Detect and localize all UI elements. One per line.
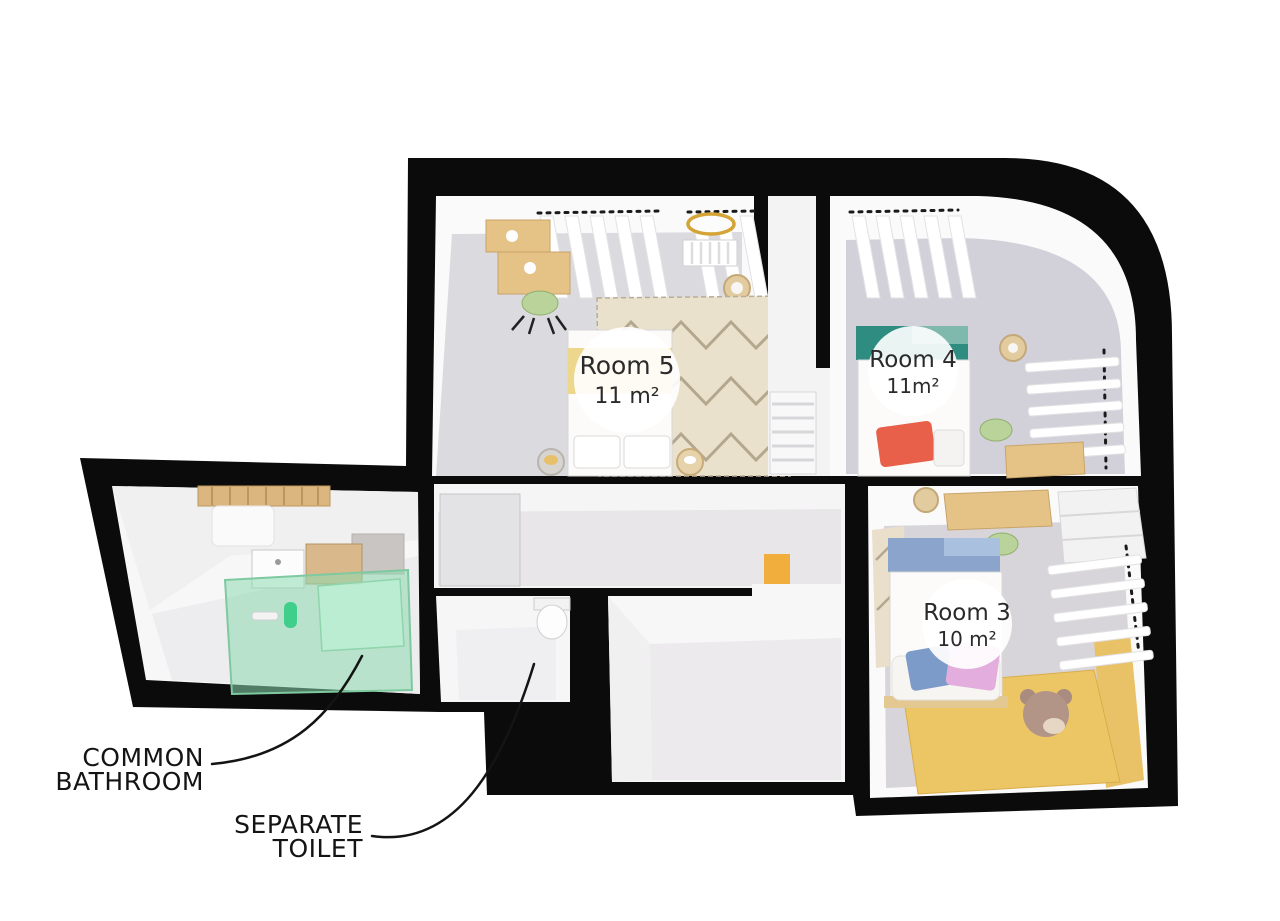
floorplan-svg: Room 5 11 m² Room 4 11m² Room 3 10 m² CO…: [0, 0, 1280, 921]
room-3: [868, 486, 1154, 798]
bed-pillow: [934, 430, 964, 466]
teddy-snout: [1043, 718, 1065, 734]
room-3-badge: Room 3 10 m²: [922, 579, 1012, 669]
toilet-room: [436, 596, 570, 702]
tub-inner: [318, 579, 404, 651]
wall-shelves: [1058, 488, 1146, 563]
badge-room-name: Room 4: [869, 347, 956, 373]
annotation-label: TOILET: [272, 834, 364, 863]
floorplan-page: Room 5 11 m² Room 4 11m² Room 3 10 m² CO…: [0, 0, 1280, 921]
wall-basket-icon: [914, 488, 938, 512]
desk-top: [1005, 442, 1085, 478]
room-4: [830, 196, 1141, 478]
desk-top: [944, 490, 1052, 530]
bed-headboard-light: [944, 538, 1000, 556]
badge-room-name: Room 3: [923, 600, 1010, 626]
desk: [1005, 442, 1085, 478]
toilet-room-floor: [456, 626, 556, 700]
desk-chair: [980, 419, 1012, 441]
nightstand-top: [544, 455, 558, 465]
desk-lamp: [506, 230, 518, 242]
entry-floor: [650, 638, 841, 780]
bathroom: [112, 486, 420, 694]
badge-room-area: 11m²: [887, 374, 940, 398]
gold-mirror-icon: [688, 214, 734, 234]
sink-faucet: [275, 559, 281, 565]
desk-accessory: [524, 262, 536, 274]
bed-pillow-red: [875, 420, 936, 467]
hanging-towels: [212, 506, 274, 546]
badge-room-name: Room 5: [579, 351, 674, 380]
corridor-door: [440, 494, 520, 586]
nightstand-top: [684, 456, 696, 464]
radiator-icon: [683, 240, 737, 266]
toilet-bowl: [537, 605, 567, 639]
entry-hall: [608, 584, 845, 782]
room-5-badge: Room 5 11 m²: [574, 327, 680, 433]
desk: [944, 490, 1052, 530]
chair-seat: [522, 291, 558, 315]
bed-pillow: [574, 436, 620, 468]
soap-bottle: [284, 602, 297, 628]
shelf-unit: [1058, 488, 1146, 563]
bed-pillow: [624, 436, 670, 468]
badge-room-area: 11 m²: [594, 384, 659, 409]
badge-circle: [574, 327, 680, 433]
bathtub-icon: [225, 570, 412, 694]
basket-inner: [731, 282, 743, 294]
annotation-label: BATHROOM: [55, 767, 204, 796]
rack-frame: [198, 486, 330, 506]
tub-shelf: [252, 612, 278, 620]
wall-basket-inner: [1008, 343, 1018, 353]
room-4-badge: Room 4 11m²: [868, 326, 958, 416]
badge-room-area: 10 m²: [937, 627, 996, 651]
desk-return: [498, 252, 570, 294]
